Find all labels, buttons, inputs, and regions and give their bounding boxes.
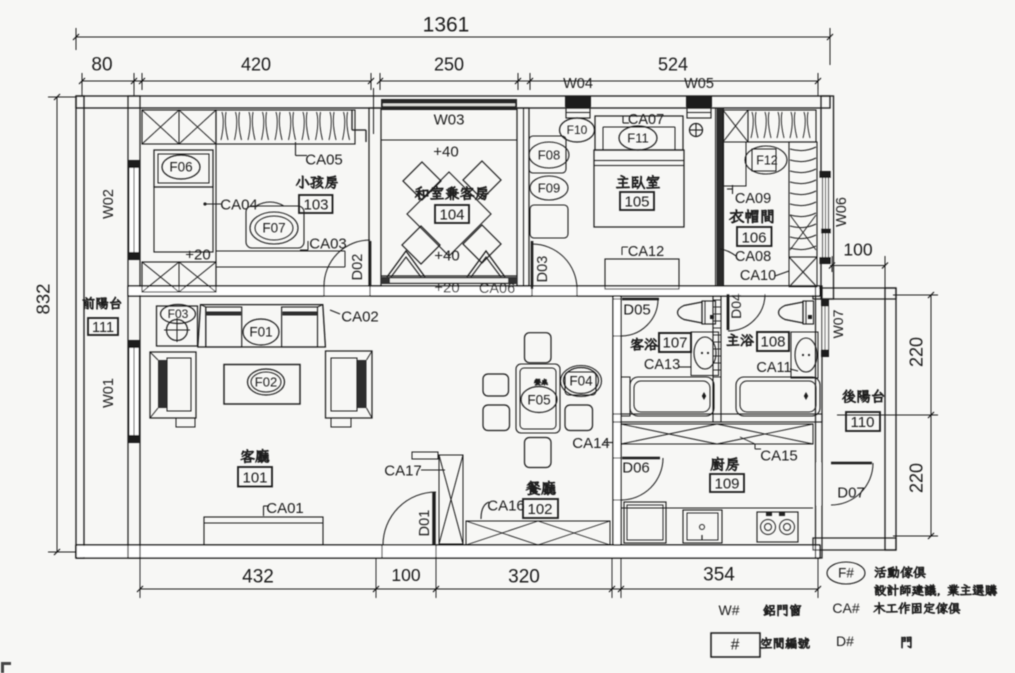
- svg-text:F03: F03: [168, 307, 189, 321]
- svg-text:CA09: CA09: [735, 191, 771, 207]
- svg-text:108: 108: [760, 333, 785, 350]
- svg-text:CA14: CA14: [572, 435, 610, 452]
- svg-text:F08: F08: [538, 148, 560, 163]
- svg-text:W02: W02: [101, 189, 117, 219]
- svg-text:+20: +20: [434, 279, 459, 296]
- svg-text:101: 101: [242, 469, 267, 486]
- svg-text:CA07: CA07: [628, 112, 664, 128]
- svg-text:CA02: CA02: [341, 308, 379, 325]
- svg-text:F02: F02: [255, 375, 277, 390]
- svg-text:104: 104: [439, 206, 464, 223]
- svg-text:250: 250: [434, 54, 464, 74]
- svg-text:CA16: CA16: [487, 497, 525, 514]
- svg-text:220: 220: [906, 337, 926, 367]
- svg-text:W03: W03: [434, 111, 465, 128]
- svg-text:100: 100: [843, 240, 872, 260]
- svg-text:CA06: CA06: [479, 281, 515, 297]
- svg-text:100: 100: [391, 565, 420, 585]
- svg-text:#: #: [731, 636, 740, 653]
- svg-text:102: 102: [527, 501, 552, 518]
- svg-text:CA12: CA12: [628, 244, 664, 260]
- svg-text:CA01: CA01: [266, 500, 304, 517]
- svg-text:F07: F07: [262, 221, 285, 236]
- svg-text:524: 524: [658, 54, 688, 74]
- svg-text:W#: W#: [719, 602, 740, 618]
- svg-text:F12: F12: [756, 153, 778, 167]
- svg-text:W01: W01: [101, 378, 117, 408]
- svg-text:D01: D01: [417, 510, 433, 537]
- svg-text:D02: D02: [350, 254, 366, 281]
- svg-text:432: 432: [242, 567, 274, 588]
- svg-text:D05: D05: [623, 301, 651, 318]
- svg-text:CA11: CA11: [756, 360, 791, 376]
- svg-text:354: 354: [703, 565, 735, 586]
- svg-text:106: 106: [741, 229, 766, 246]
- svg-text:103: 103: [303, 196, 328, 213]
- svg-text:107: 107: [662, 334, 687, 351]
- svg-text:CA13: CA13: [644, 357, 680, 373]
- svg-text:+20: +20: [185, 246, 210, 263]
- svg-text:W05: W05: [684, 76, 714, 92]
- svg-text:110: 110: [851, 414, 875, 431]
- svg-text:80: 80: [91, 55, 112, 76]
- svg-text:F04: F04: [569, 374, 593, 389]
- svg-text:832: 832: [32, 284, 53, 315]
- svg-text:CA#: CA#: [832, 600, 859, 616]
- svg-text:320: 320: [508, 567, 540, 588]
- svg-text:F05: F05: [527, 393, 550, 408]
- svg-text:F10: F10: [567, 123, 588, 137]
- svg-text:CA17: CA17: [384, 462, 422, 479]
- svg-text:CA05: CA05: [305, 151, 343, 168]
- svg-text:111: 111: [92, 320, 114, 336]
- svg-text:105: 105: [624, 193, 649, 210]
- svg-text:F06: F06: [169, 160, 192, 175]
- svg-text:CA04: CA04: [220, 196, 258, 213]
- svg-text:109: 109: [714, 475, 739, 492]
- svg-text:W07: W07: [830, 309, 846, 338]
- svg-text:F01: F01: [249, 325, 272, 340]
- svg-text:D07: D07: [837, 484, 865, 501]
- svg-text:420: 420: [241, 54, 271, 74]
- svg-text:F09: F09: [538, 181, 560, 196]
- svg-text:+40: +40: [434, 247, 459, 264]
- svg-text:D#: D#: [836, 633, 854, 649]
- svg-text:CA15: CA15: [760, 447, 798, 464]
- svg-text:1361: 1361: [423, 13, 470, 36]
- svg-text:D03: D03: [535, 256, 551, 283]
- svg-text:CA08: CA08: [735, 249, 771, 265]
- svg-text:220: 220: [906, 463, 926, 493]
- svg-text:D04: D04: [728, 293, 744, 319]
- svg-text:F11: F11: [627, 131, 648, 146]
- svg-text:W06: W06: [834, 197, 850, 227]
- svg-text:W04: W04: [563, 76, 593, 92]
- svg-text:F#: F#: [838, 566, 854, 581]
- svg-text:CA10: CA10: [740, 268, 776, 284]
- svg-text:+40: +40: [433, 143, 458, 160]
- svg-text:D06: D06: [622, 459, 650, 476]
